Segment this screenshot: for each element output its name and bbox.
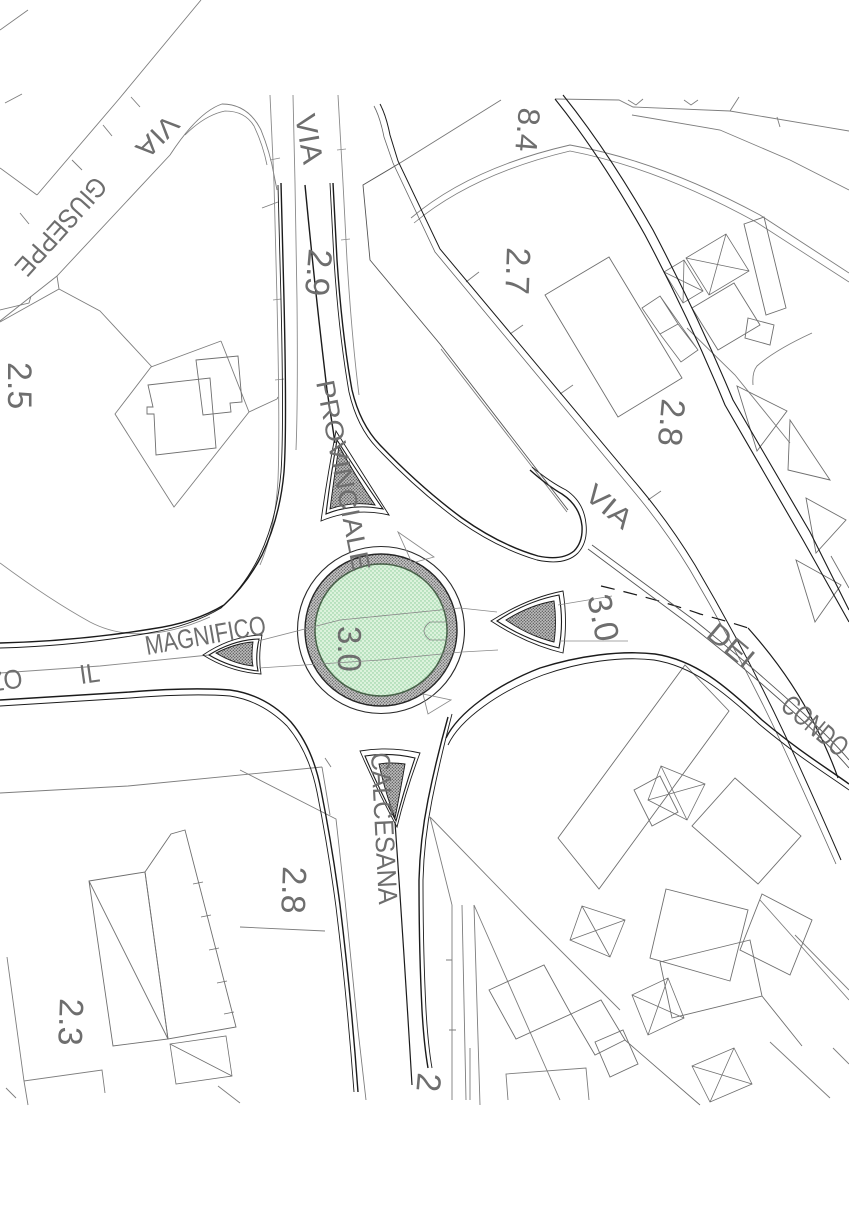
svg-text:2.9: 2.9 <box>297 247 339 297</box>
svg-text:2.5: 2.5 <box>0 362 38 409</box>
svg-text:3.0: 3.0 <box>331 626 368 672</box>
svg-text:2.8: 2.8 <box>650 397 692 447</box>
svg-text:2.8: 2.8 <box>273 866 313 915</box>
svg-text:8.4: 8.4 <box>508 106 547 153</box>
svg-text:ZO: ZO <box>0 664 25 698</box>
svg-text:2.7: 2.7 <box>497 247 537 296</box>
svg-text:2.3: 2.3 <box>50 998 90 1047</box>
svg-text:IL: IL <box>78 657 102 689</box>
svg-text:2: 2 <box>408 1071 448 1093</box>
